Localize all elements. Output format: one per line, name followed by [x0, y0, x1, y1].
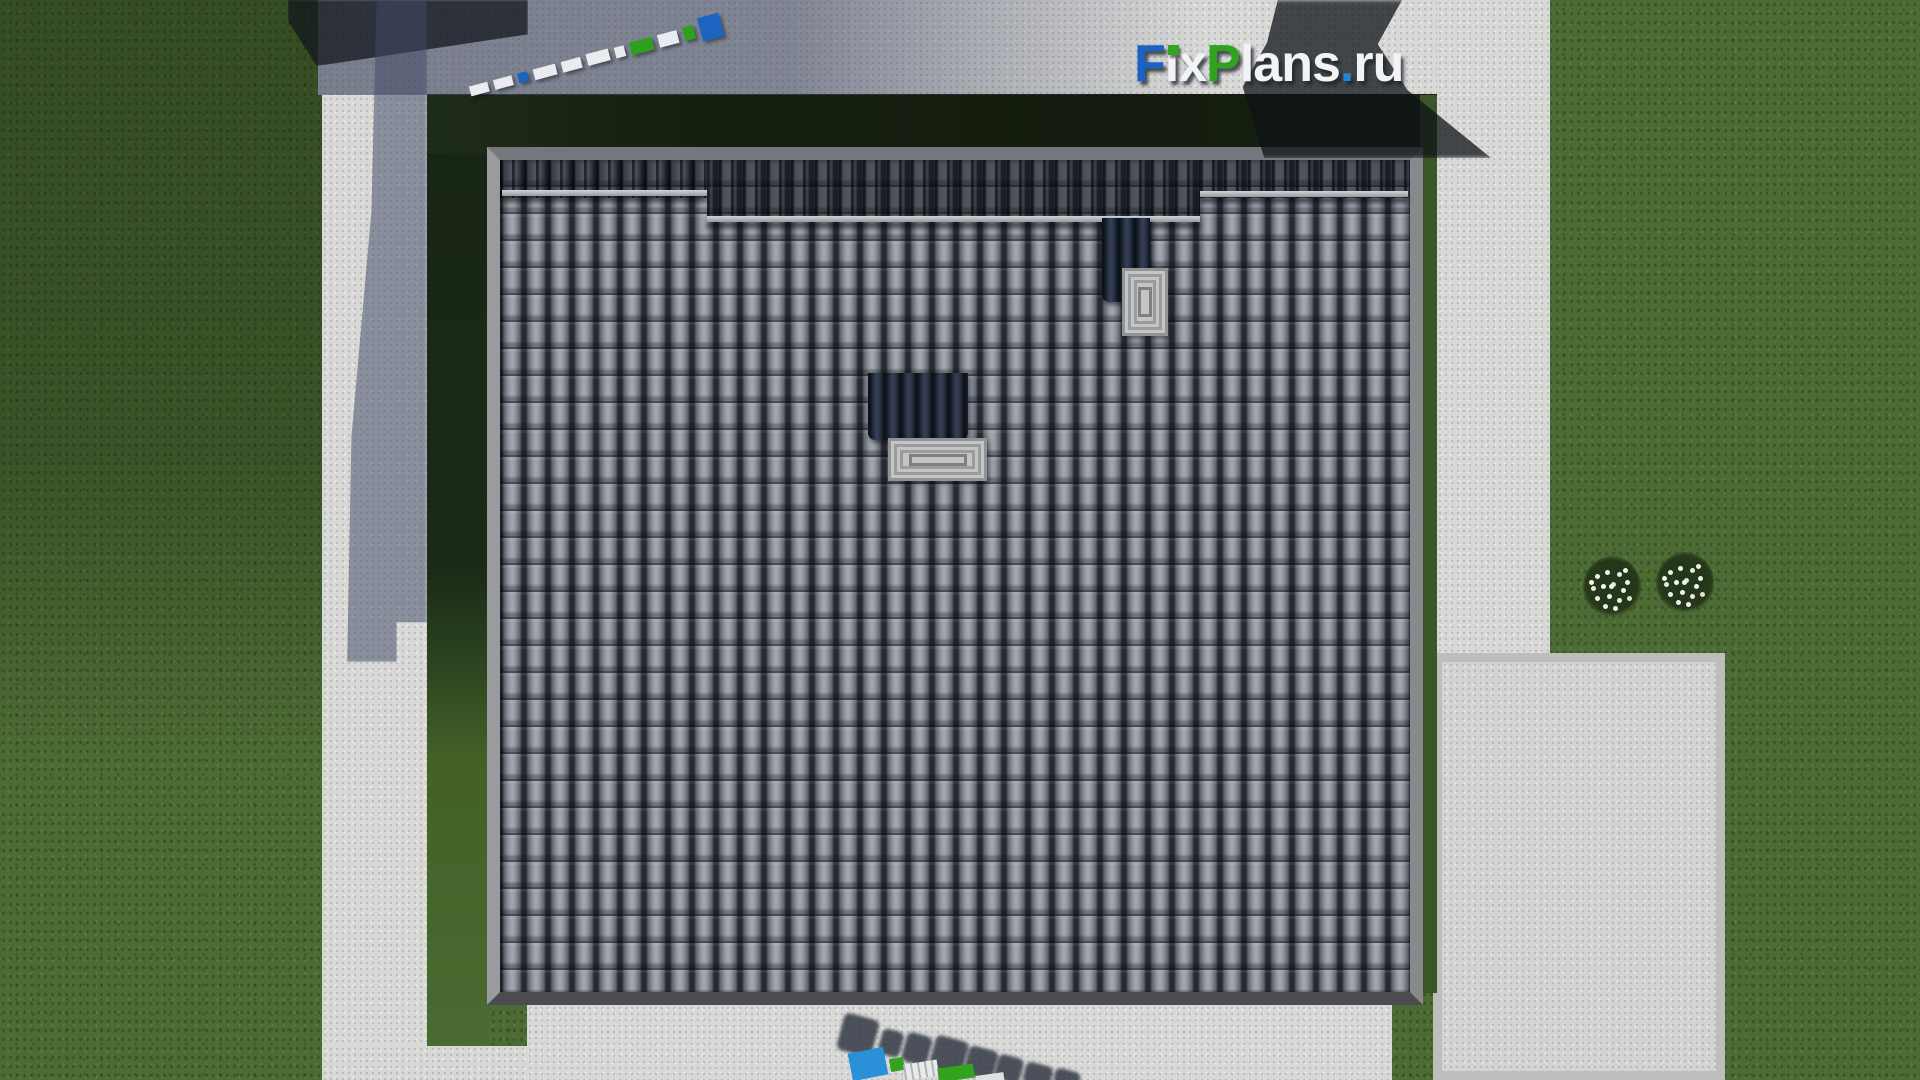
aerial-roof-render: FıxPlans.ru [0, 0, 1920, 1080]
ruler-segment [614, 45, 627, 58]
ruler-segment [533, 63, 558, 79]
flowering-bush [1656, 552, 1714, 614]
grass-strip-left [427, 94, 489, 1046]
logo-letter-i: ı [1165, 36, 1178, 92]
logo-letter: F [1134, 35, 1165, 93]
fixplans-logo: FıxPlans.ru [1134, 36, 1403, 96]
bottom-walkway [322, 1046, 530, 1080]
logo-letter: u [1373, 35, 1404, 93]
ruler-segment [629, 36, 655, 55]
logo-letter: r [1353, 35, 1372, 93]
logo-letter: a [1253, 35, 1281, 93]
snow-guard-left [502, 190, 707, 196]
snow-guard-right [1200, 191, 1408, 197]
logo-dot: . [1340, 35, 1353, 93]
logo-letter: x [1178, 35, 1206, 93]
logo-letter: P [1206, 35, 1240, 93]
bottom-fixplans-watermark [828, 1008, 1108, 1080]
watermark-letter-shadow [1022, 1061, 1055, 1080]
right-walkway [1437, 0, 1550, 653]
chimney-opening-right [1138, 287, 1152, 317]
house-roof [487, 147, 1423, 1005]
watermark-block-white [903, 1059, 939, 1080]
ruler-segment [469, 82, 490, 97]
ruler-segment [517, 71, 529, 83]
watermark-letter-shadow [1052, 1067, 1081, 1080]
chimney-cap-center [888, 438, 987, 481]
ruler-segment [585, 48, 611, 66]
ridge-shadow-middle [707, 160, 1200, 222]
flowering-bush [1583, 556, 1641, 618]
driveway-slab [1433, 653, 1725, 1080]
ruler-segment [493, 75, 514, 89]
ruler-segment [560, 57, 582, 73]
logo-letter: s [1312, 35, 1340, 93]
ruler-segment [657, 29, 680, 47]
roof-tiles [500, 160, 1410, 992]
chimney-cap-right [1122, 268, 1168, 336]
lawn-shade-left [0, 0, 324, 760]
logo-i-dot [1168, 45, 1179, 55]
logo-letter: n [1281, 35, 1312, 93]
ruler-segment [682, 25, 696, 41]
watermark-block-blue [848, 1047, 889, 1080]
logo-letter: l [1240, 35, 1253, 93]
chimney-flue-center [868, 373, 968, 440]
chimney-opening-center [909, 454, 967, 466]
